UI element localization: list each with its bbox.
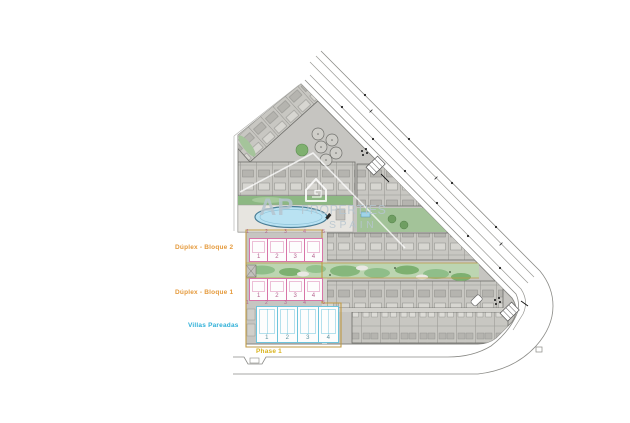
footpath-row [327,308,508,312]
building-row-d [352,312,508,343]
bloque2-unit-2: 2 [267,238,286,262]
plot-number: 4 [303,230,306,235]
plot-number: 3 [284,230,287,235]
bloque1-unit-row: 1 2 3 4 [249,278,322,301]
bloque2-unit-1: 1 [249,238,268,262]
service-structure [247,309,255,320]
building-row-b [327,233,477,260]
label-duplex-bloque2: Dúplex - Bloque 2 [175,244,233,251]
bloque1-unit-4: 4 [304,278,323,301]
villa-unit-1: 1 [256,306,278,343]
site-plan-canvas: Dúplex - Bloque 2 Dúplex - Bloque 1 Vill… [0,0,630,423]
site-plan-drawing [0,0,630,423]
plot-number: 1 [246,301,249,306]
unit-number: 2 [268,254,285,260]
road-side-marker [536,347,542,352]
unit-number: 4 [305,254,322,260]
pool-shed [336,209,345,220]
bloque2-unit-row: 1 2 3 4 [249,238,322,262]
unit-number: 2 [268,293,285,299]
label-villas-pareadas: Villas Pareadas [188,322,239,329]
unit-number: 1 [257,335,277,341]
lawn-tree [400,221,408,229]
label-phase-1: Phase 1 [256,348,282,355]
unit-number: 1 [250,254,267,260]
plot-number: 1 [246,230,249,235]
small-pool [361,212,370,217]
unit-number: 4 [305,293,322,299]
service-structure [247,324,255,336]
bloque2-unit-4: 4 [304,238,323,262]
road-entry-box [250,358,259,363]
unit-number: 3 [287,293,304,299]
plot-number: 2 [265,230,268,235]
bloque2-plot-numbers: 1 2 3 4 5 [246,230,325,235]
unit-number: 1 [250,293,267,299]
green-tree [296,144,308,156]
villas-unit-row: 1 2 3 4 [256,306,338,343]
plot-number: 5 [322,230,325,235]
villa-unit-3: 3 [297,306,319,343]
villa-unit-4: 4 [318,306,340,343]
unit-number: 4 [319,335,339,341]
unit-number: 3 [298,335,318,341]
label-duplex-bloque1: Dúplex - Bloque 1 [175,289,233,296]
bloque1-unit-1: 1 [249,278,268,301]
bloque1-unit-2: 2 [267,278,286,301]
villa-unit-2: 2 [277,306,299,343]
unit-number: 3 [287,254,304,260]
bloque1-unit-3: 3 [286,278,305,301]
lawn-tree [388,215,396,223]
bloque2-unit-3: 3 [286,238,305,262]
unit-number: 2 [278,335,298,341]
pool-garden-blob [252,197,284,203]
utility-box [246,265,256,277]
